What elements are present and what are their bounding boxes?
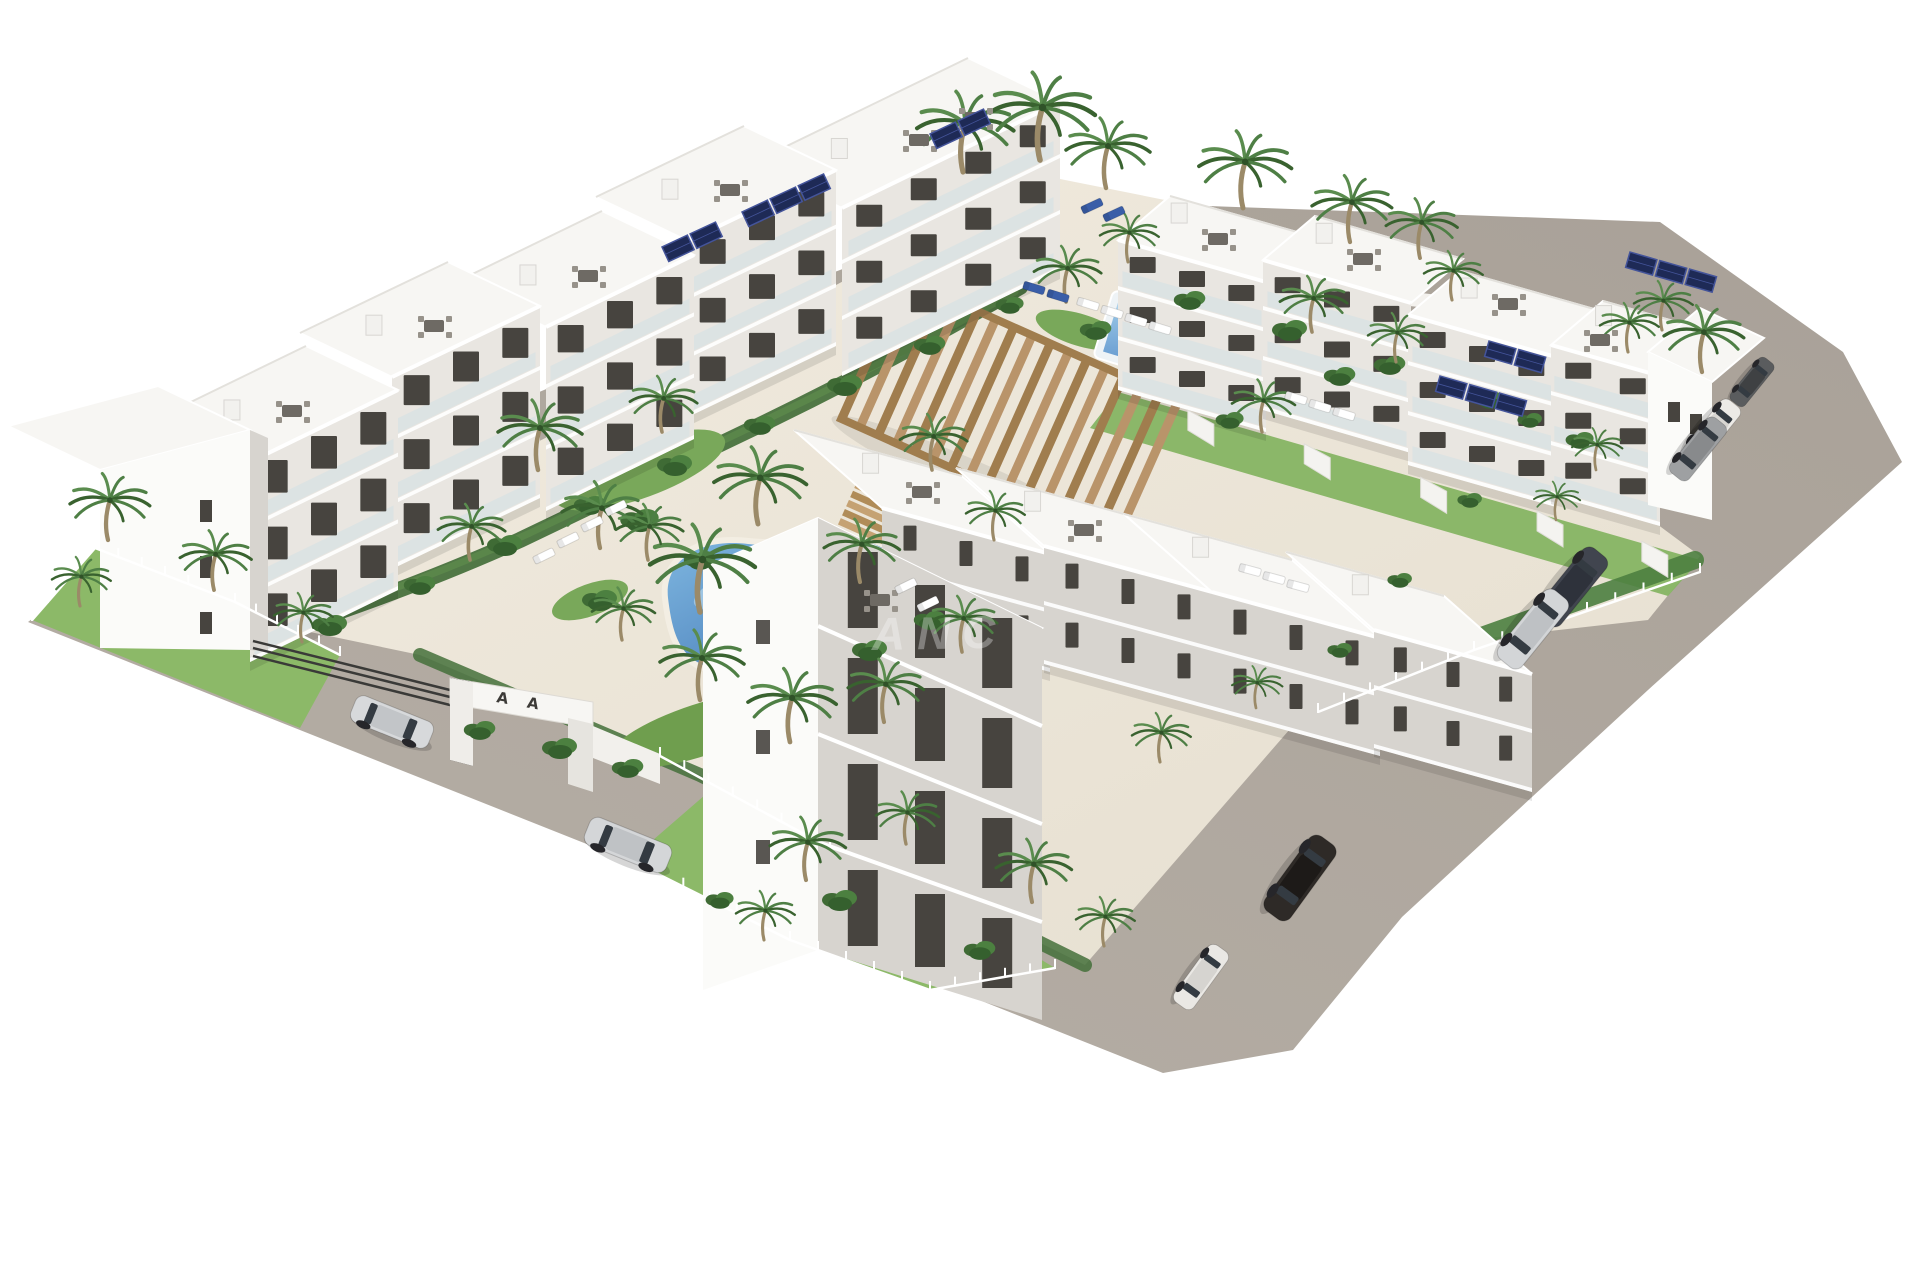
watermark: ANC — [870, 606, 1008, 660]
palm-tree — [1199, 131, 1291, 208]
gate-left-pillar-face — [450, 678, 473, 766]
architectural-render: A A ANC — [0, 0, 1920, 1280]
gate-right-pillar — [568, 718, 593, 792]
palm-tree — [1066, 118, 1150, 188]
render-canvas: A A ANC — [0, 0, 1920, 1280]
